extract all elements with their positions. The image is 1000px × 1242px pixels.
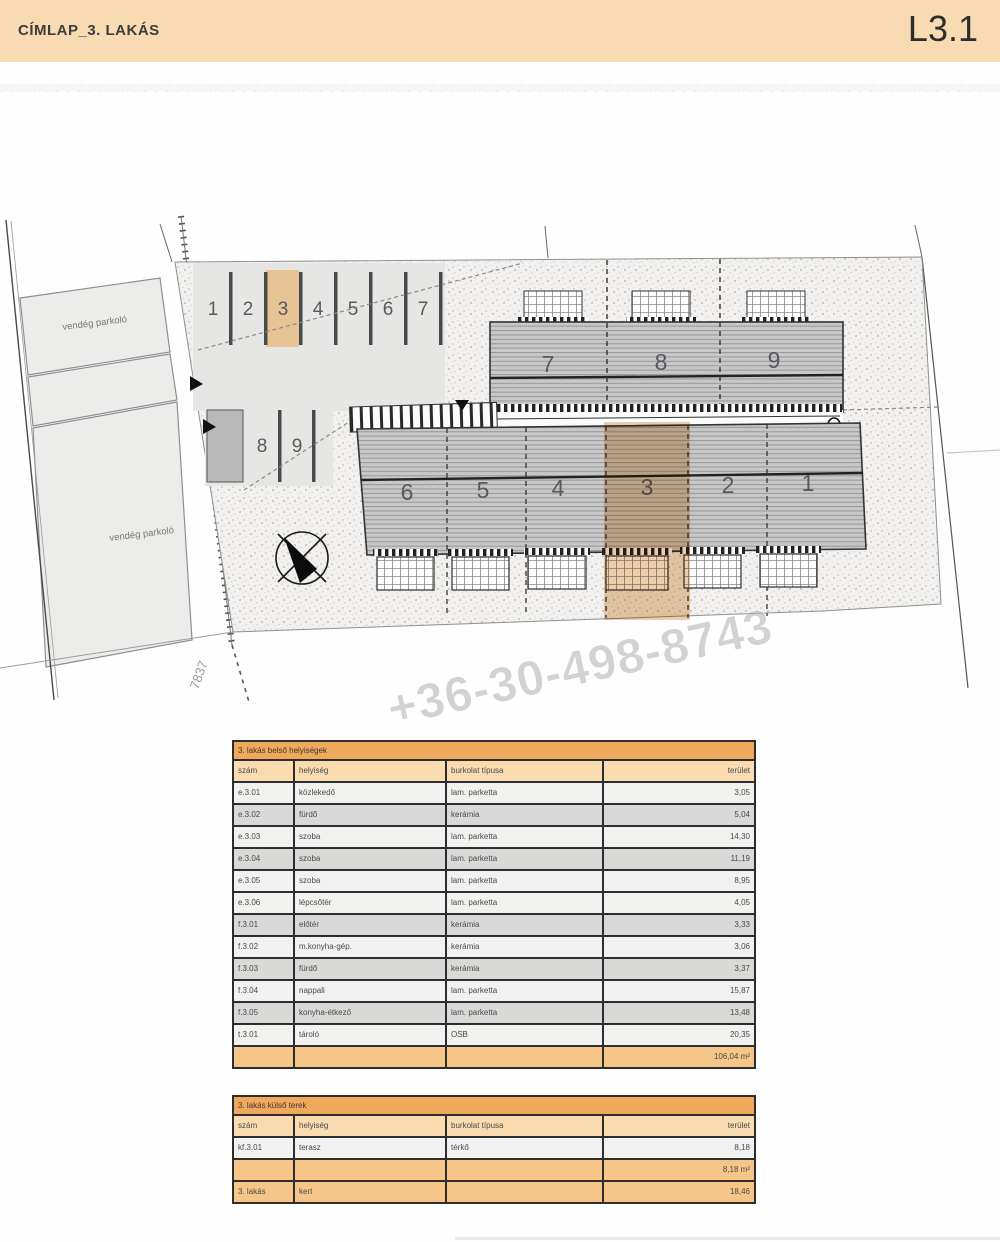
parking-space-8: 8	[257, 436, 268, 457]
table-header-row: szám helyiség burkolat típusa terület	[234, 761, 754, 783]
unit-label-7: 7	[542, 351, 555, 377]
unit-label-2: 2	[722, 472, 735, 498]
unit-label-9: 9	[768, 347, 781, 373]
exterior-subtotal-area: 8,18 m²	[604, 1160, 754, 1180]
col-header-room: helyiség	[295, 1116, 447, 1136]
parking-space-7: 7	[418, 299, 429, 320]
table-header-row: szám helyiség burkolat típusa terület	[234, 1116, 754, 1138]
table-row: kf.3.01terasztérkő8,18	[234, 1138, 754, 1160]
unit-label-6: 6	[401, 479, 414, 505]
table-row: f.3.02m.konyha-gép.kerámia3,06	[234, 937, 754, 959]
col-header-num: szám	[234, 1116, 295, 1136]
table-row: f.3.04nappalilam. parketta15,87	[234, 981, 754, 1003]
unit-3-highlight	[604, 422, 690, 620]
interior-rooms-table: 3. lakás belső helyiségek szám helyiség …	[232, 740, 756, 1069]
parking-space-1: 1	[208, 299, 219, 320]
table-row: t.3.01tárolóOSB20,35	[234, 1025, 754, 1047]
sheet-page: CÍMLAP_3. LAKÁS L3.1	[0, 0, 1000, 1242]
col-header-floor: burkolat típusa	[447, 1116, 604, 1136]
parking-space-6: 6	[383, 299, 394, 320]
top-texture-sliver	[0, 84, 1000, 92]
col-header-floor: burkolat típusa	[447, 761, 604, 781]
table-row: f.3.03fürdőkerámia3,37	[234, 959, 754, 981]
col-header-area: terület	[604, 1116, 754, 1136]
table-row: e.3.04szobalam. parketta11,19	[234, 849, 754, 871]
bottom-edge-artifact	[455, 1237, 1000, 1240]
unit-label-8: 8	[655, 349, 668, 375]
garden-row: 3. lakás kert 18,46	[234, 1182, 754, 1202]
table-row: f.3.01előtérkerámia3,33	[234, 915, 754, 937]
guest-parking-parcels: vendég parkoló vendég parkoló	[20, 278, 192, 667]
col-header-area: terület	[604, 761, 754, 781]
unit-label-4: 4	[552, 475, 565, 501]
parking-space-2: 2	[243, 299, 254, 320]
table-title: 3. lakás külső terek	[234, 1097, 754, 1116]
col-header-num: szám	[234, 761, 295, 781]
table-row: e.3.02fürdőkerámia5,04	[234, 805, 754, 827]
parcel-number: 7837	[187, 659, 211, 691]
table-row: f.3.05konyha-étkezőlam. parketta13,48	[234, 1003, 754, 1025]
table-row: e.3.01közlekedőlam. parketta3,05	[234, 783, 754, 805]
table-row: e.3.06lépcsőtérlam. parketta4,05	[234, 893, 754, 915]
unit-label-5: 5	[477, 477, 490, 503]
table-title: 3. lakás belső helyiségek	[234, 742, 754, 761]
parking-space-3: 3	[278, 299, 289, 320]
unit-label-1: 1	[802, 470, 815, 496]
exterior-spaces-table: 3. lakás külső terek szám helyiség burko…	[232, 1095, 756, 1204]
parking-space-9: 9	[292, 436, 303, 457]
table-subtotal-row: 8,18 m²	[234, 1160, 754, 1182]
col-header-room: helyiség	[295, 761, 447, 781]
table-total-row: 106,04 m²	[234, 1047, 754, 1067]
interior-total-area: 106,04 m²	[604, 1047, 754, 1067]
table-row: e.3.03szobalam. parketta14,30	[234, 827, 754, 849]
table-row: e.3.05szobalam. parketta8,95	[234, 871, 754, 893]
